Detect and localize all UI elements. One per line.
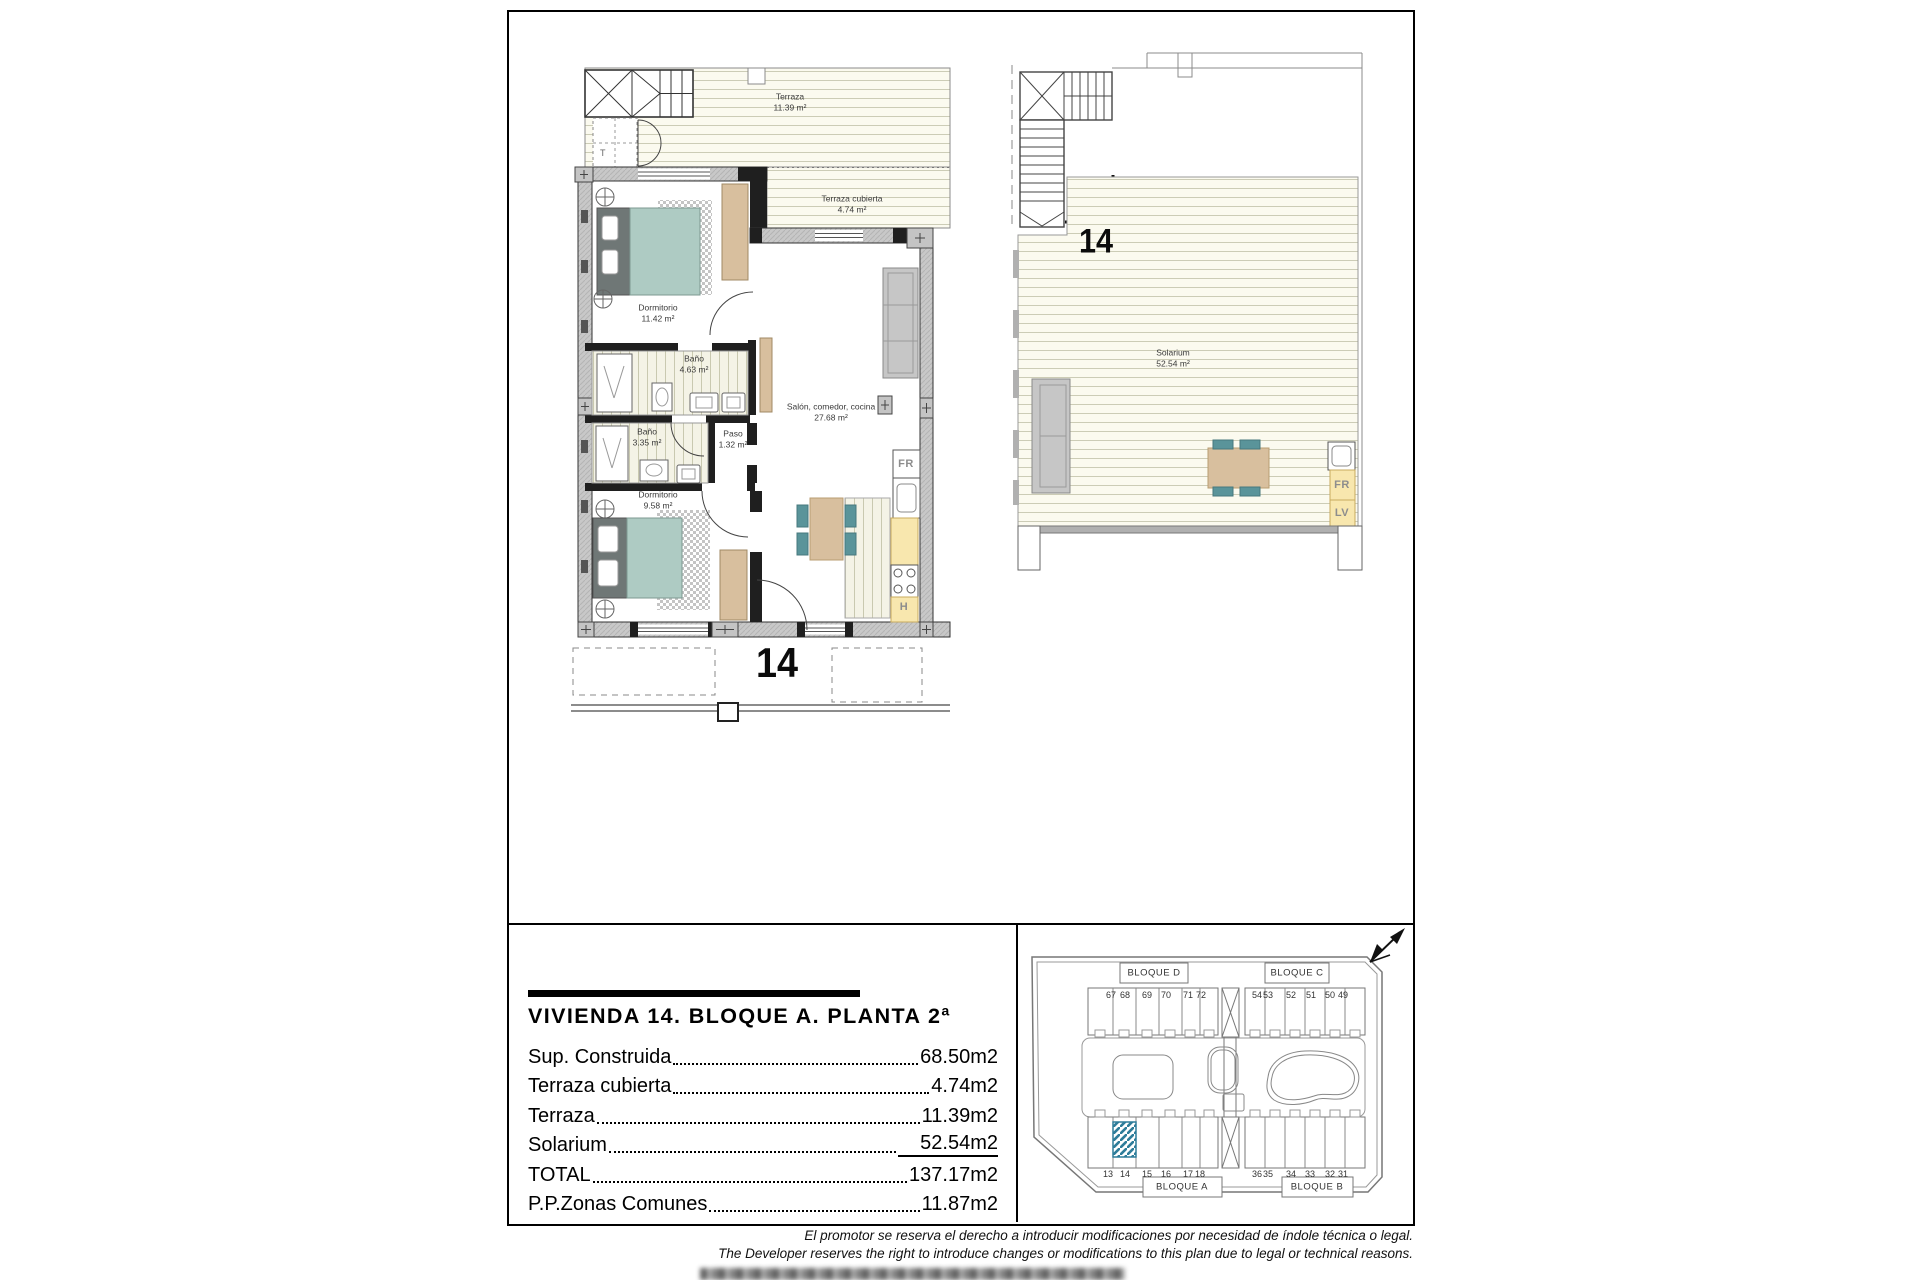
summary-label: Sup. Construida (528, 1046, 671, 1069)
site-unit-number: 52 (1286, 990, 1296, 1000)
panel-divider-vertical (1016, 925, 1018, 1222)
room-name: Baño (633, 427, 662, 438)
dot-leader (673, 1063, 918, 1065)
site-unit-number: 53 (1263, 990, 1273, 1000)
room-name: Solarium (1156, 348, 1190, 359)
redacted-watermark (700, 1268, 1125, 1280)
panel-divider-horizontal (507, 923, 1413, 925)
site-unit-number: 36 (1252, 1169, 1262, 1179)
summary-row: TOTAL 137.17m2 (528, 1157, 998, 1187)
room-label-bano-1: Baño 4.63 m² (680, 354, 709, 377)
room-label-dormitorio-1: Dormitorio 11.42 m² (638, 303, 677, 326)
block-label-b: BLOQUE B (1291, 1182, 1344, 1193)
summary-row: Terraza cubierta 4.74m2 (528, 1069, 998, 1099)
site-unit-number: 54 (1252, 990, 1262, 1000)
disclaimer-line-en: The Developer reserves the right to intr… (507, 1245, 1413, 1263)
summary-label: P.P.Zonas Comunes (528, 1193, 707, 1216)
disclaimer: El promotor se reserva el derecho a intr… (507, 1227, 1413, 1262)
site-unit-number: 51 (1306, 990, 1316, 1000)
room-name: Terraza cubierta (822, 194, 883, 205)
summary-title: VIVIENDA 14. BLOQUE A. PLANTA 2ª (528, 1004, 998, 1029)
site-unit-number: 16 (1161, 1169, 1171, 1179)
summary-value: 4.74m2 (931, 1075, 998, 1098)
site-unit-number: 67 (1106, 990, 1116, 1000)
dishwasher-tag: LV (1335, 507, 1349, 519)
site-unit-number: 18 (1195, 1169, 1205, 1179)
site-unit-number: 17 (1183, 1169, 1193, 1179)
summary-row: Sup. Construida 68.50m2 (528, 1039, 998, 1069)
room-name: Paso (719, 429, 748, 440)
room-name: Baño (680, 354, 709, 365)
room-area: 4.74 m² (822, 205, 883, 216)
site-unit-number: 68 (1120, 990, 1130, 1000)
room-area: 4.63 m² (680, 365, 709, 376)
site-unit-number: 13 (1103, 1169, 1113, 1179)
summary-value: 137.17m2 (909, 1164, 998, 1187)
area-summary-panel: VIVIENDA 14. BLOQUE A. PLANTA 2ª Sup. Co… (528, 990, 998, 1216)
disclaimer-line-es: El promotor se reserva el derecho a intr… (507, 1227, 1413, 1245)
dot-leader (597, 1122, 920, 1124)
fridge-tag: FR (1334, 479, 1350, 491)
room-area: 1.32 m² (719, 440, 748, 451)
site-unit-number: 70 (1161, 990, 1171, 1000)
room-label-salon: Salón, comedor, cocina 27.68 m² (787, 402, 875, 425)
block-label-a: BLOQUE A (1156, 1182, 1208, 1193)
summary-value: 68.50m2 (920, 1046, 998, 1069)
site-unit-number: 15 (1142, 1169, 1152, 1179)
site-unit-number: 34 (1286, 1169, 1296, 1179)
room-name: Dormitorio (638, 490, 677, 501)
site-unit-number: 69 (1142, 990, 1152, 1000)
stair-tag: T (600, 148, 606, 158)
room-label-terraza-cubierta: Terraza cubierta 4.74 m² (822, 194, 883, 217)
unit-number-solarium: 14 (1079, 223, 1113, 262)
summary-value-underlined: 52.54m2 (898, 1132, 998, 1157)
site-unit-number: 72 (1196, 990, 1206, 1000)
summary-value: 11.39m2 (922, 1105, 998, 1128)
site-unit-number: 31 (1338, 1169, 1348, 1179)
site-unit-number: 33 (1305, 1169, 1315, 1179)
room-area: 11.42 m² (638, 314, 677, 325)
summary-label: Terraza cubierta (528, 1075, 671, 1098)
room-name: Salón, comedor, cocina (787, 402, 875, 413)
room-area: 9.58 m² (638, 501, 677, 512)
room-label-bano-2: Baño 3.35 m² (633, 427, 662, 450)
room-area: 11.39 m² (774, 103, 807, 114)
summary-label: Solarium (528, 1134, 607, 1157)
summary-row: P.P.Zonas Comunes 11.87m2 (528, 1187, 998, 1217)
dot-leader (709, 1210, 919, 1212)
room-label-terraza: Terraza 11.39 m² (774, 92, 807, 115)
room-name: Dormitorio (638, 303, 677, 314)
hob-tag: H (900, 601, 908, 613)
block-label-d: BLOQUE D (1127, 968, 1180, 979)
room-label-solarium: Solarium 52.54 m² (1156, 348, 1190, 371)
site-unit-number: 50 (1325, 990, 1335, 1000)
site-unit-number: 49 (1338, 990, 1348, 1000)
floorplan-sheet: Terraza 11.39 m² Terraza cubierta 4.74 m… (0, 0, 1920, 1280)
summary-value: 11.87m2 (922, 1193, 998, 1216)
room-area: 3.35 m² (633, 438, 662, 449)
unit-number-main: 14 (756, 639, 798, 687)
room-area: 52.54 m² (1156, 359, 1190, 370)
summary-row: Terraza 11.39m2 (528, 1098, 998, 1128)
room-area: 27.68 m² (787, 413, 875, 424)
dot-leader (593, 1181, 907, 1183)
site-unit-number: 35 (1263, 1169, 1273, 1179)
summary-row: Solarium 52.54m2 (528, 1128, 998, 1158)
room-label-paso: Paso 1.32 m² (719, 429, 748, 452)
site-unit-number: 32 (1325, 1169, 1335, 1179)
site-unit-number: 14 (1120, 1169, 1130, 1179)
dot-leader (609, 1151, 896, 1153)
title-rule (528, 990, 860, 997)
block-label-c: BLOQUE C (1270, 968, 1323, 979)
fridge-tag: FR (898, 458, 914, 470)
summary-label: Terraza (528, 1105, 595, 1128)
room-label-dormitorio-2: Dormitorio 9.58 m² (638, 490, 677, 513)
site-unit-number: 71 (1183, 990, 1193, 1000)
dot-leader (673, 1092, 929, 1094)
summary-label: TOTAL (528, 1164, 591, 1187)
room-name: Terraza (774, 92, 807, 103)
